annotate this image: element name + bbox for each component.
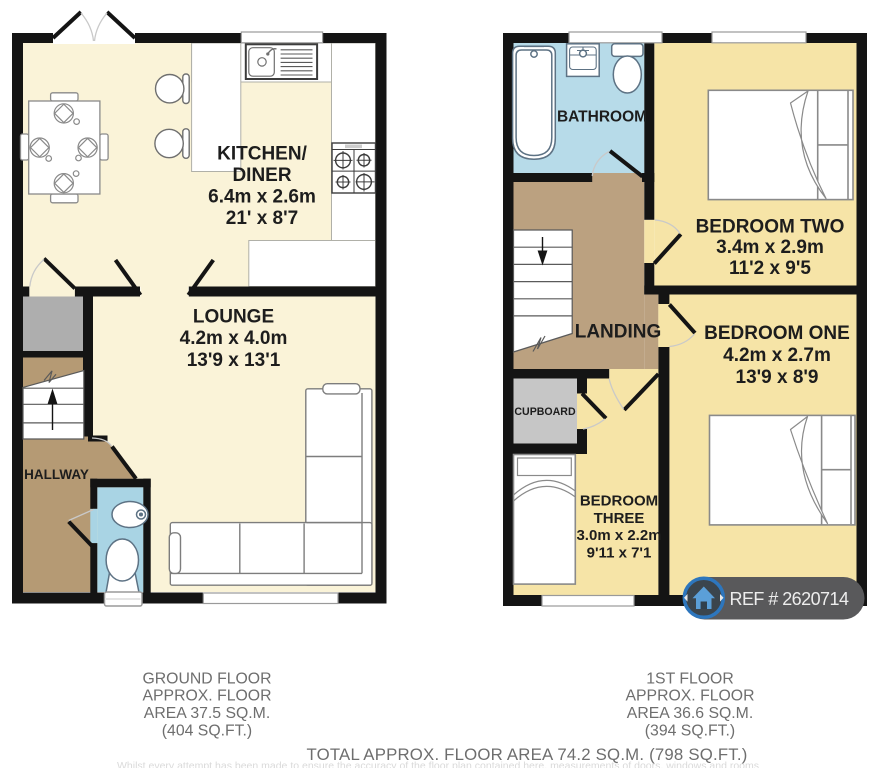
svg-text:AREA 36.6 SQ.M.: AREA 36.6 SQ.M. — [627, 705, 753, 722]
svg-text:LOUNGE: LOUNGE — [193, 307, 274, 328]
svg-text:3.0m x 2.2m: 3.0m x 2.2m — [576, 527, 661, 544]
svg-text:21' x 8'7: 21' x 8'7 — [226, 208, 298, 229]
svg-text:(404 SQ.FT.): (404 SQ.FT.) — [162, 723, 252, 740]
svg-text:APPROX. FLOOR: APPROX. FLOOR — [142, 688, 271, 705]
svg-text:THREE: THREE — [594, 510, 645, 527]
svg-text:3.4m x 2.9m: 3.4m x 2.9m — [716, 237, 824, 258]
svg-text:BEDROOM: BEDROOM — [580, 493, 658, 510]
svg-text:REF # 2620714: REF # 2620714 — [730, 589, 849, 609]
svg-text:BEDROOM TWO: BEDROOM TWO — [696, 217, 845, 238]
svg-text:BATHROOM: BATHROOM — [557, 109, 647, 126]
svg-text:9'11 x 7'1: 9'11 x 7'1 — [587, 545, 652, 562]
svg-text:Whilst every attempt has been: Whilst every attempt has been made to en… — [117, 760, 759, 768]
svg-text:11'2 x 9'5: 11'2 x 9'5 — [729, 258, 811, 279]
svg-text:4.2m x 4.0m: 4.2m x 4.0m — [180, 328, 288, 349]
svg-text:CUPBOARD: CUPBOARD — [514, 406, 576, 418]
svg-text:BEDROOM ONE: BEDROOM ONE — [704, 323, 850, 344]
svg-text:13'9 x 13'1: 13'9 x 13'1 — [187, 350, 281, 371]
svg-text:4.2m x 2.7m: 4.2m x 2.7m — [723, 345, 831, 366]
svg-text:1ST FLOOR: 1ST FLOOR — [646, 670, 734, 687]
svg-text:6.4m x 2.6m: 6.4m x 2.6m — [208, 187, 316, 208]
svg-text:AREA 37.5 SQ.M.: AREA 37.5 SQ.M. — [144, 705, 270, 722]
svg-text:(394 SQ.FT.): (394 SQ.FT.) — [645, 723, 735, 740]
svg-text:HALLWAY: HALLWAY — [24, 467, 89, 482]
svg-text:KITCHEN/: KITCHEN/ — [217, 144, 307, 165]
svg-text:LANDING: LANDING — [575, 322, 662, 343]
svg-text:GROUND FLOOR: GROUND FLOOR — [142, 670, 271, 687]
svg-text:APPROX. FLOOR: APPROX. FLOOR — [625, 688, 754, 705]
svg-text:DINER: DINER — [232, 165, 291, 186]
svg-text:13'9 x 8'9: 13'9 x 8'9 — [736, 367, 819, 388]
